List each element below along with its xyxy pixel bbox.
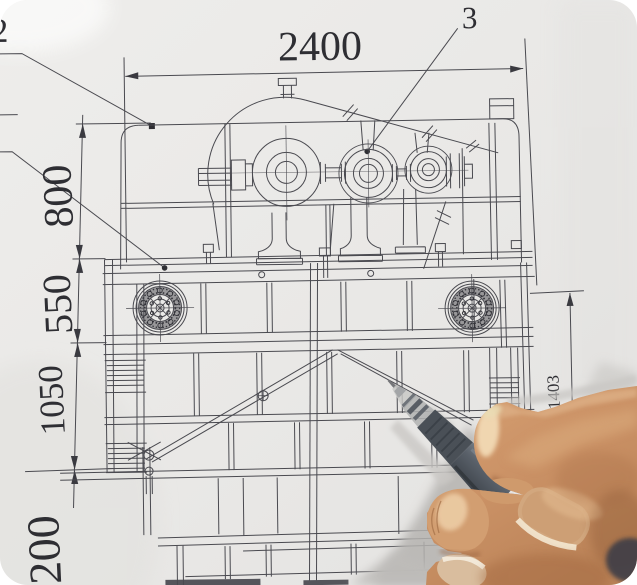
svg-text:2400: 2400 (278, 23, 363, 70)
svg-text:800: 800 (34, 164, 83, 229)
svg-text:3: 3 (462, 0, 478, 35)
svg-text:1050: 1050 (31, 364, 73, 436)
svg-text:1200: 1200 (17, 514, 72, 585)
svg-text:550: 550 (34, 273, 82, 335)
